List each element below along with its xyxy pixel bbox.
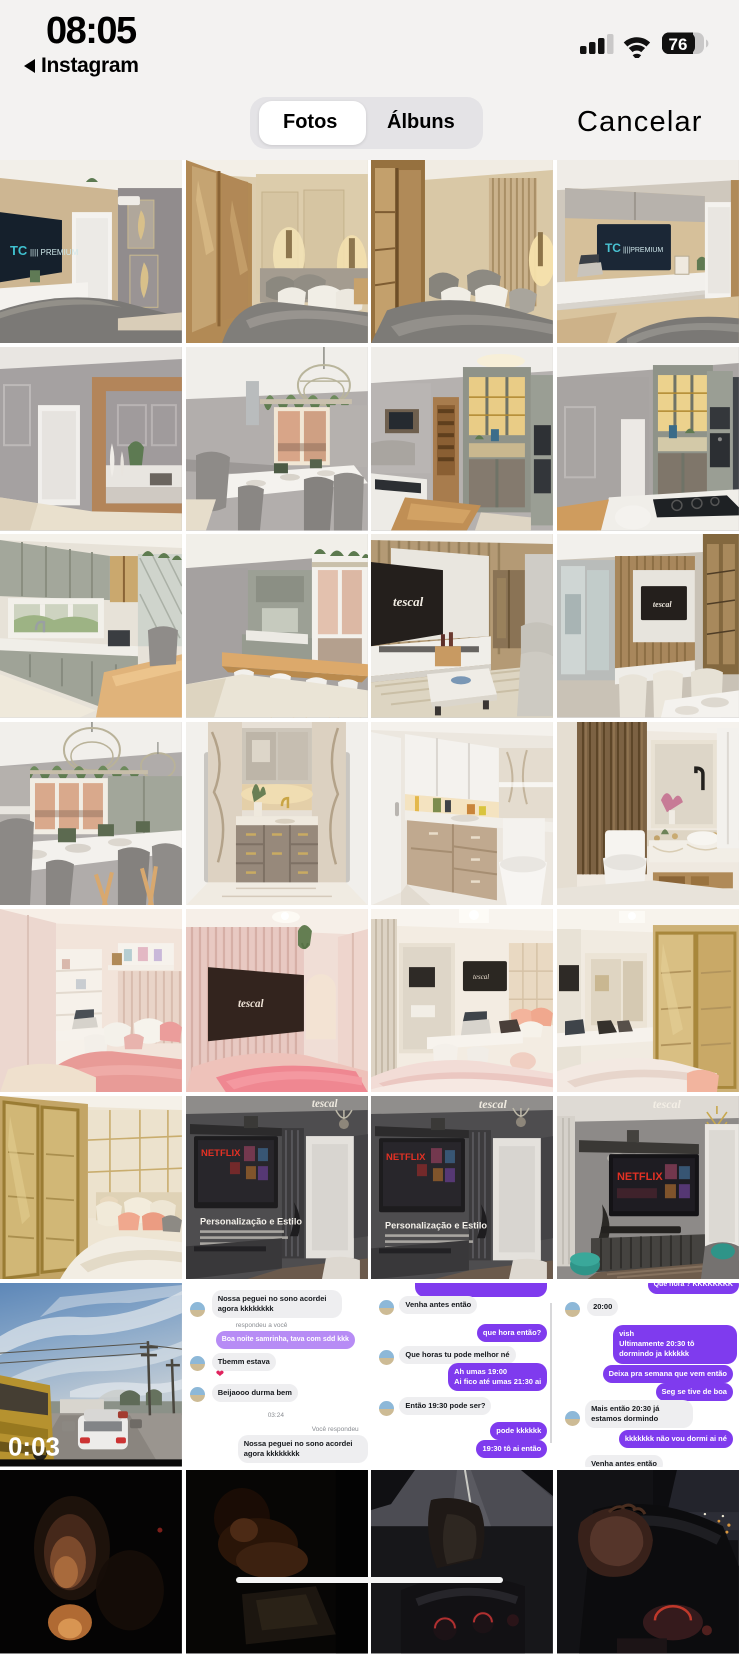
svg-text:NETFLIX: NETFLIX [201, 1148, 241, 1159]
svg-text:tescal: tescal [393, 595, 424, 610]
svg-text:tescal: tescal [238, 998, 265, 1010]
svg-text:||||PREMIUM: ||||PREMIUM [623, 247, 663, 254]
svg-text:|||| PREMIUM: |||| PREMIUM [30, 248, 79, 257]
svg-text:tescal: tescal [653, 1097, 682, 1111]
svg-text:tescal: tescal [479, 1097, 508, 1111]
svg-text:NETFLIX: NETFLIX [386, 1152, 426, 1163]
svg-text:0:03: 0:03 [8, 1431, 60, 1461]
svg-text:tescal: tescal [473, 973, 489, 981]
svg-text:tescal: tescal [653, 601, 672, 610]
svg-text:TC: TC [10, 243, 28, 258]
svg-text:tescal: tescal [312, 1098, 339, 1110]
svg-text:TC: TC [605, 241, 621, 255]
svg-text:76: 76 [669, 35, 688, 54]
svg-text:Personalização e Estilo: Personalização e Estilo [200, 1216, 302, 1226]
svg-text:NETFLIX: NETFLIX [617, 1171, 663, 1183]
svg-text:Personalização e Estilo: Personalização e Estilo [385, 1220, 487, 1230]
